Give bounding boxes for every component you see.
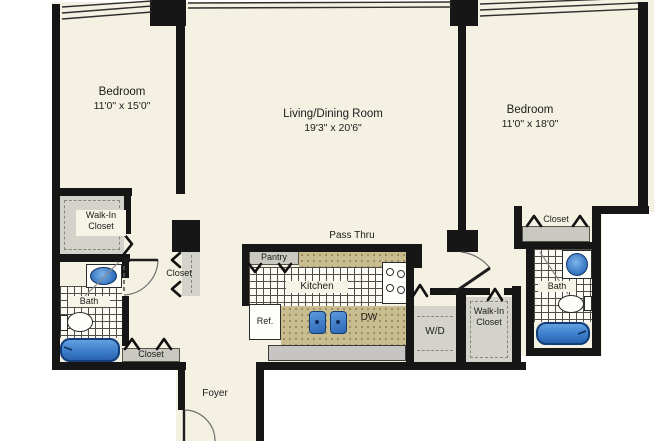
washer-dryer-label: W/D — [416, 326, 454, 338]
bedroom-right-label: Bedroom 11'0" x 18'0" — [474, 104, 586, 130]
room-name: Living/Dining Room — [238, 108, 428, 122]
tub-faucet-icon — [64, 331, 586, 350]
chevron-door-mark — [172, 282, 180, 296]
room-name: Bedroom — [66, 86, 178, 100]
living-dining-label: Living/Dining Room 19'3" x 20'6" — [238, 108, 428, 134]
door-foyer-entry — [184, 410, 215, 441]
window-lines-bedroom-left — [62, 1, 152, 19]
bedroom-left-label: Bedroom 11'0" x 15'0" — [66, 86, 178, 112]
room-dims: 11'0" x 15'0" — [66, 100, 178, 112]
pantry-label: Pantry — [252, 252, 296, 263]
dishwasher-label: DW — [351, 312, 387, 324]
closet-hall-left-label: Closet — [156, 268, 202, 279]
bath-right-label: Bath — [538, 281, 576, 292]
chevron-door-mark — [488, 289, 502, 300]
chevron-door-mark — [125, 339, 139, 349]
window-lines-living — [188, 2, 452, 8]
window-lines-bedroom-right — [480, 0, 638, 16]
chevron-door-mark — [279, 264, 291, 272]
room-name: Bedroom — [474, 104, 586, 118]
room-dims: 11'0" x 18'0" — [474, 118, 586, 130]
kitchen-label: Kitchen — [286, 281, 348, 293]
walk-in-closet-left-label: Walk-In Closet — [76, 210, 126, 236]
chevron-door-mark — [124, 234, 132, 254]
door-bath-left — [82, 262, 124, 299]
bath-left-label: Bath — [68, 296, 110, 307]
chevron-door-mark — [413, 285, 427, 296]
chevron-door-mark — [249, 264, 261, 272]
foyer-label: Foyer — [188, 388, 242, 400]
door-left-hall — [124, 260, 158, 295]
room-dims: 19'3" x 20'6" — [238, 122, 428, 134]
door-bedroom-right — [452, 252, 490, 294]
floor-plan: Bedroom 11'0" x 15'0" Living/Dining Room… — [0, 0, 665, 441]
chevron-door-mark — [172, 253, 180, 267]
closet-right-label: Closet — [534, 214, 578, 225]
walk-in-closet-right-label: Walk-In Closet — [464, 306, 514, 327]
refrigerator-label: Ref. — [251, 316, 279, 327]
chevron-door-mark — [157, 339, 171, 349]
closet-bath-left-label: Closet — [124, 349, 178, 360]
pass-thru-label: Pass Thru — [312, 230, 392, 242]
